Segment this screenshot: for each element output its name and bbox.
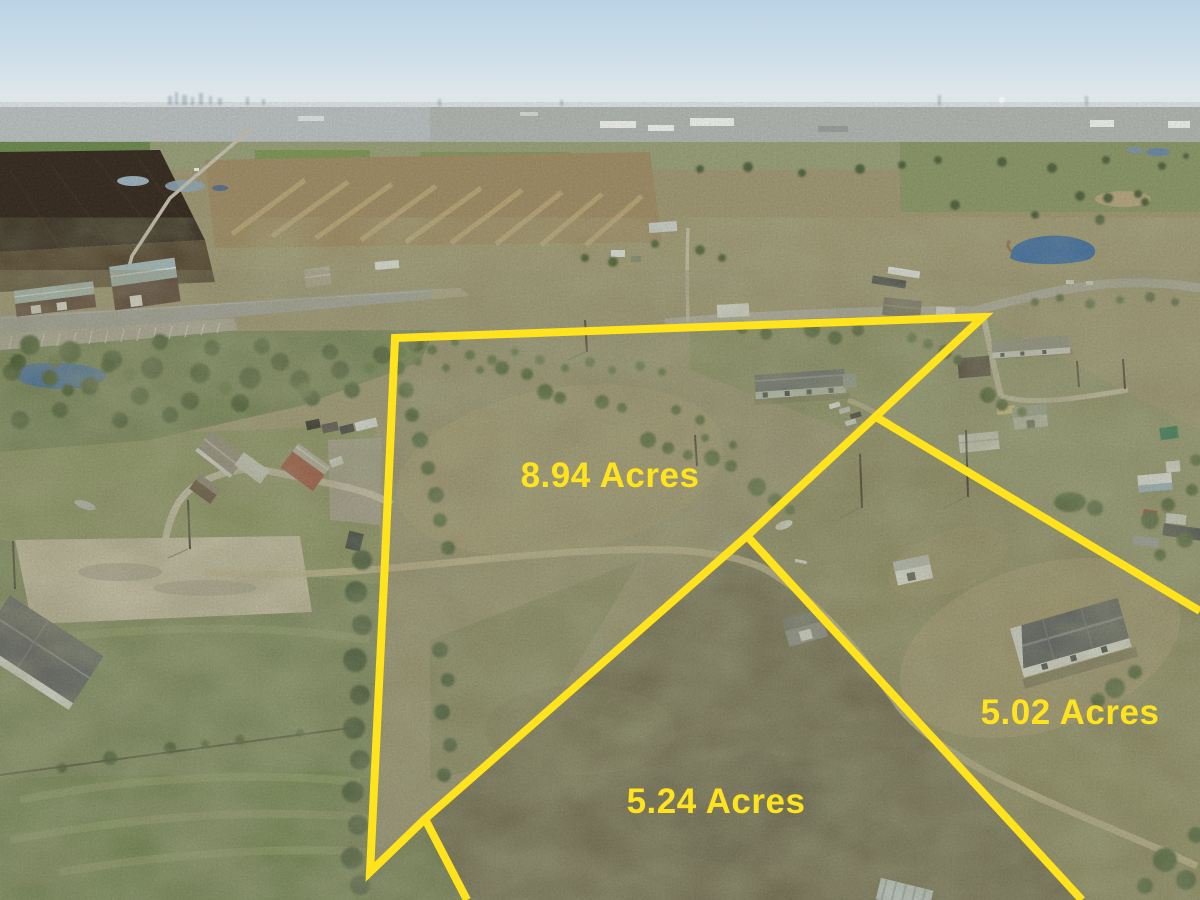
grass-texture	[0, 140, 1200, 900]
parcel-label-524: 5.24 Acres	[627, 782, 806, 821]
parcel-label-894: 8.94 Acres	[521, 456, 700, 495]
parcel-label-502: 5.02 Acres	[981, 693, 1160, 732]
sky	[0, 0, 1200, 120]
aerial-photo-stage: 8.94 Acres 5.24 Acres 5.02 Acres	[0, 0, 1200, 900]
aerial-photo: 8.94 Acres 5.24 Acres 5.02 Acres	[0, 0, 1200, 900]
